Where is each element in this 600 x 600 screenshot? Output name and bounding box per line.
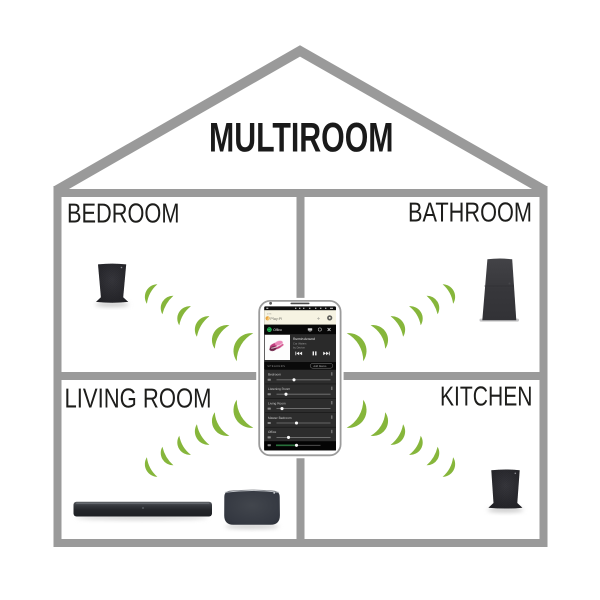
svg-text:Master Bedroom: Master Bedroom — [268, 416, 292, 420]
svg-text:Play-Fi: Play-Fi — [270, 317, 282, 321]
svg-text:by Device: by Device — [293, 346, 305, 349]
svg-text:LIVING ROOM: LIVING ROOM — [65, 383, 212, 414]
svg-text:Living Room: Living Room — [268, 401, 286, 405]
svg-text:MULTIROOM: MULTIROOM — [209, 114, 394, 161]
svg-text:+: + — [317, 317, 321, 323]
svg-text:DTS: DTS — [267, 313, 272, 316]
svg-text:Add Stereo: Add Stereo — [313, 365, 327, 368]
svg-text:Office: Office — [268, 430, 276, 434]
svg-text:Bedroom: Bedroom — [268, 373, 281, 377]
svg-text:KITCHEN: KITCHEN — [440, 381, 533, 412]
svg-text:BATHROOM: BATHROOM — [408, 197, 532, 228]
svg-text:Office: Office — [273, 328, 282, 332]
svg-text:SPEAKERS: SPEAKERS — [267, 365, 285, 368]
svg-text:Car Waters: Car Waters — [293, 343, 307, 346]
svg-text:BEDROOM: BEDROOM — [67, 198, 180, 229]
svg-text:Runnin Around: Runnin Around — [293, 337, 315, 341]
svg-text:Listening Room: Listening Room — [268, 387, 290, 391]
